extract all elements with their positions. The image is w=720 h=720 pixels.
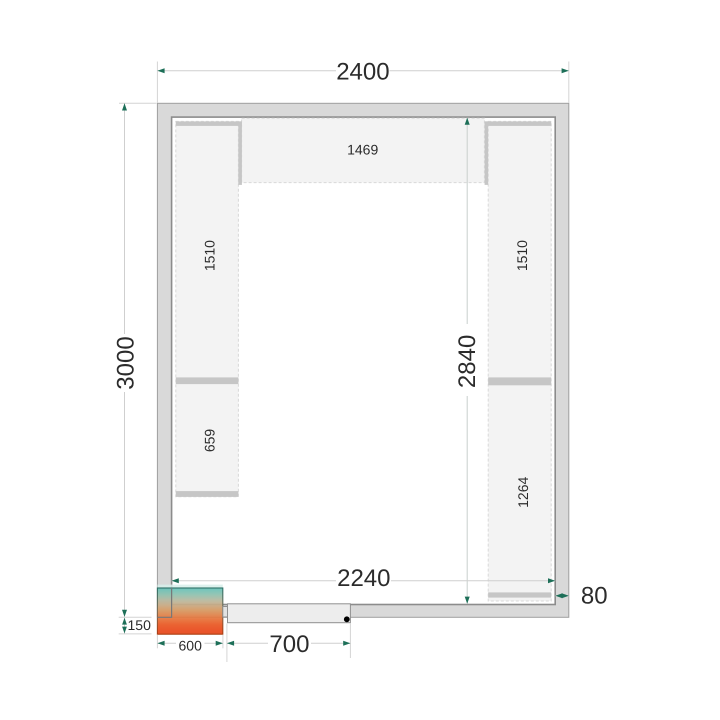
svg-text:1469: 1469 — [347, 141, 378, 157]
svg-text:1264: 1264 — [515, 477, 531, 508]
svg-text:2400: 2400 — [336, 59, 389, 86]
svg-text:1510: 1510 — [514, 240, 530, 271]
svg-text:1510: 1510 — [201, 240, 217, 271]
svg-text:2840: 2840 — [454, 335, 481, 388]
svg-text:150: 150 — [128, 617, 152, 633]
svg-text:2240: 2240 — [337, 565, 390, 592]
svg-text:700: 700 — [269, 631, 309, 658]
svg-text:3000: 3000 — [112, 336, 139, 389]
svg-text:659: 659 — [201, 429, 217, 453]
svg-text:80: 80 — [581, 582, 608, 609]
svg-text:600: 600 — [179, 637, 203, 653]
